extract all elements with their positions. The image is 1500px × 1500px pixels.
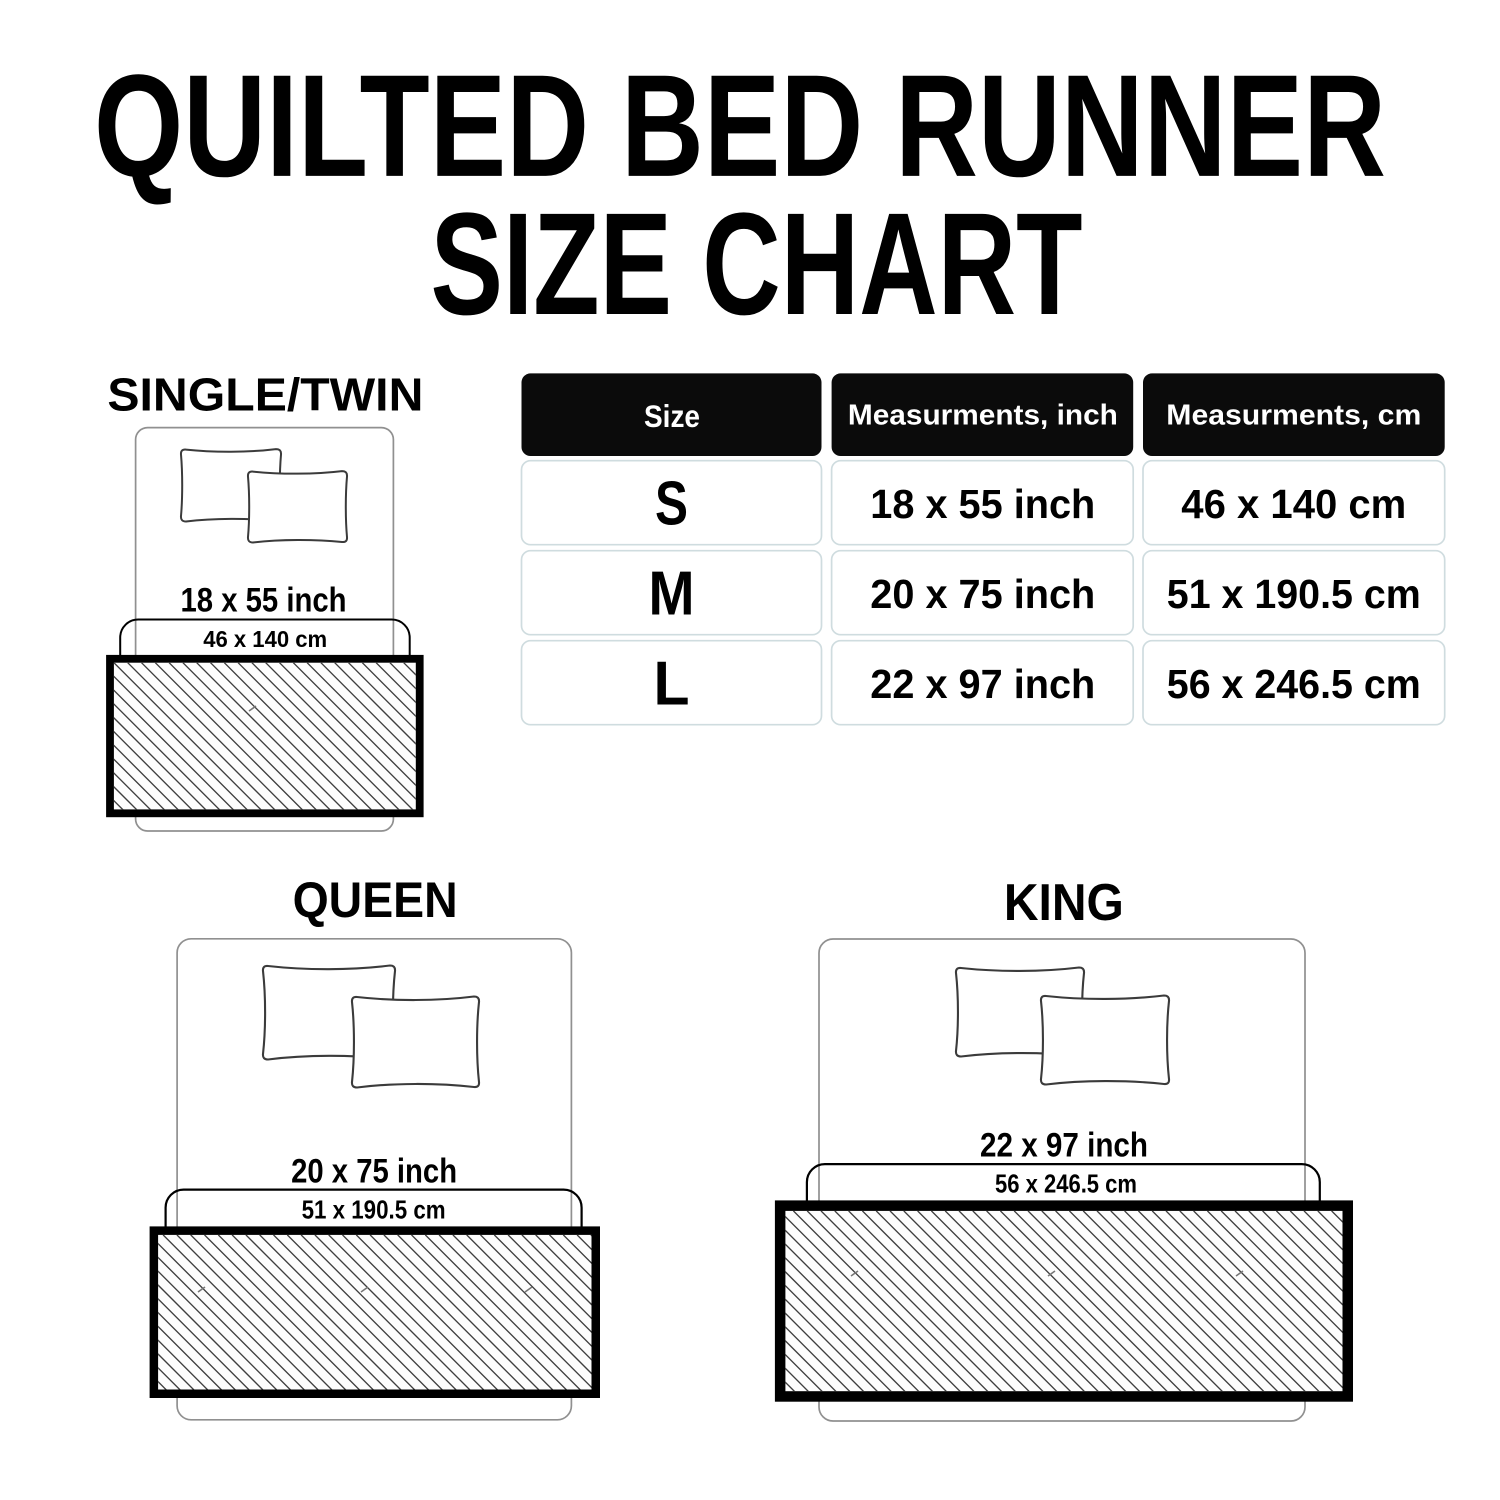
svg-text:SINGLE/TWIN: SINGLE/TWIN	[107, 368, 423, 420]
svg-text:Measurments, cm: Measurments, cm	[1166, 400, 1421, 432]
svg-text:18 x 55 inch: 18 x 55 inch	[181, 582, 347, 620]
svg-text:20 x 75 inch: 20 x 75 inch	[291, 1152, 457, 1190]
svg-text:20 x 75 inch: 20 x 75 inch	[870, 571, 1095, 617]
svg-text:L: L	[654, 649, 690, 719]
svg-text:46 x 140 cm: 46 x 140 cm	[1181, 481, 1406, 527]
svg-text:18 x 55 inch: 18 x 55 inch	[870, 481, 1095, 527]
svg-text:KING: KING	[1004, 873, 1124, 931]
svg-text:22 x 97 inch: 22 x 97 inch	[980, 1127, 1148, 1165]
svg-text:Size: Size	[644, 398, 700, 434]
svg-text:Measurments, inch: Measurments, inch	[848, 400, 1118, 432]
svg-text:56 x 246.5 cm: 56 x 246.5 cm	[995, 1169, 1137, 1199]
svg-text:QUEEN: QUEEN	[293, 871, 458, 928]
svg-text:M: M	[649, 559, 695, 629]
svg-text:22 x 97 inch: 22 x 97 inch	[870, 661, 1095, 707]
svg-text:51 x 190.5 cm: 51 x 190.5 cm	[302, 1196, 446, 1224]
svg-text:S: S	[655, 469, 688, 539]
svg-text:46 x 140 cm: 46 x 140 cm	[203, 626, 327, 652]
svg-text:56 x 246.5 cm: 56 x 246.5 cm	[1167, 661, 1421, 707]
svg-text:SIZE CHART: SIZE CHART	[431, 182, 1083, 345]
svg-text:51 x 190.5 cm: 51 x 190.5 cm	[1167, 571, 1421, 617]
